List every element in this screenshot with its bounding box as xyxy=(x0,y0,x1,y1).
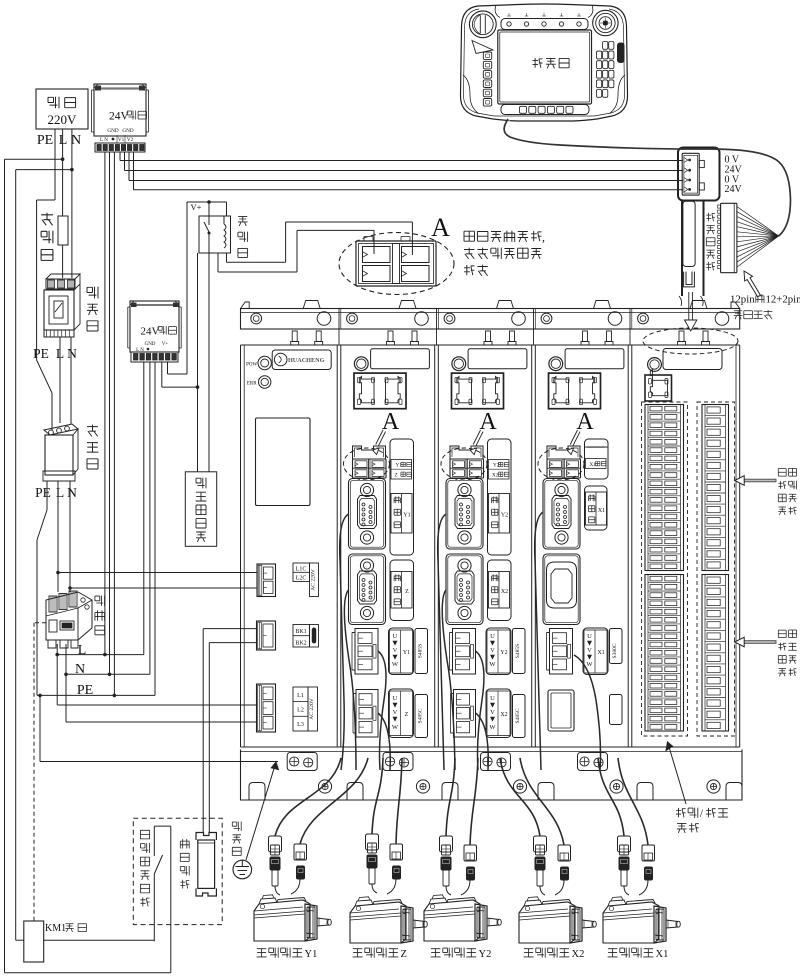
svg-text:L N: L N xyxy=(100,137,108,143)
svg-text:N: N xyxy=(71,133,81,148)
svg-text:Y1: Y1 xyxy=(396,463,403,469)
svg-text:S485C: S485C xyxy=(515,708,521,723)
svg-text:V: V xyxy=(587,647,592,654)
svg-text:PE: PE xyxy=(35,485,51,500)
svg-text:Z: Z xyxy=(405,589,409,595)
svg-text:X2: X2 xyxy=(500,712,507,718)
svg-text:A: A xyxy=(431,213,450,242)
svg-text:24V: 24V xyxy=(109,111,130,123)
svg-text:Y2: Y2 xyxy=(501,513,508,519)
svg-text:Y1: Y1 xyxy=(403,513,410,519)
svg-text:X1: X1 xyxy=(597,650,604,656)
svg-text:V: V xyxy=(490,647,495,654)
svg-text:A: A xyxy=(479,409,497,435)
svg-text:HUACHENG: HUACHENG xyxy=(288,357,325,364)
svg-text:W: W xyxy=(489,724,496,731)
svg-text:S485S: S485S xyxy=(418,644,424,658)
svg-text:24V: 24V xyxy=(141,326,160,338)
svg-text:U: U xyxy=(490,633,495,640)
svg-text:L2C: L2C xyxy=(296,576,307,582)
svg-text:12pin: 12pin xyxy=(730,294,755,306)
svg-text:A: A xyxy=(382,409,400,435)
svg-text:W: W xyxy=(392,661,399,668)
svg-text:Y2: Y2 xyxy=(500,650,507,656)
svg-text:U: U xyxy=(587,633,592,640)
svg-text:S380C: S380C xyxy=(612,643,618,658)
svg-text:220V: 220V xyxy=(48,112,78,127)
svg-text:W: W xyxy=(489,661,496,668)
svg-text:S485C: S485C xyxy=(418,708,424,723)
svg-text:POW: POW xyxy=(246,363,257,368)
svg-text:V: V xyxy=(393,709,398,716)
svg-text:L3: L3 xyxy=(297,722,304,728)
svg-text:Z: Z xyxy=(395,473,398,479)
svg-text:PE: PE xyxy=(37,133,53,148)
svg-text:BK1: BK1 xyxy=(295,629,306,635)
svg-text:L2: L2 xyxy=(297,708,304,714)
svg-text:,: , xyxy=(542,230,545,244)
svg-text:V2: V2 xyxy=(127,137,134,143)
svg-text:Y2: Y2 xyxy=(493,463,500,469)
svg-text:GND: GND xyxy=(145,342,156,347)
svg-text:Z: Z xyxy=(401,949,407,960)
svg-text:GND: GND xyxy=(107,128,118,134)
svg-text:Y1: Y1 xyxy=(403,650,410,656)
svg-text:U: U xyxy=(490,695,495,702)
svg-text:Z: Z xyxy=(405,712,409,718)
svg-text:PE: PE xyxy=(33,346,49,361)
svg-text:Y1: Y1 xyxy=(305,949,318,960)
svg-text:W: W xyxy=(586,661,593,668)
svg-text:24V: 24V xyxy=(725,184,743,195)
svg-text:X2: X2 xyxy=(501,589,508,595)
svg-text:V1: V1 xyxy=(118,137,125,143)
svg-text:X2: X2 xyxy=(572,949,585,960)
svg-text:U: U xyxy=(393,695,398,702)
svg-text:X2: X2 xyxy=(492,473,499,479)
svg-text:L1: L1 xyxy=(297,693,304,699)
svg-text:A: A xyxy=(576,409,594,435)
svg-text:V: V xyxy=(490,709,495,716)
svg-text:AC 220V: AC 220V xyxy=(309,698,315,720)
svg-text:GND: GND xyxy=(122,128,133,134)
svg-text:L: L xyxy=(56,485,64,500)
svg-text:Y2: Y2 xyxy=(479,949,492,960)
svg-text:V: V xyxy=(393,647,398,654)
svg-text:U: U xyxy=(393,633,398,640)
svg-text:12+2pin: 12+2pin xyxy=(766,294,800,306)
svg-text:W: W xyxy=(392,724,399,731)
svg-text:ERR: ERR xyxy=(247,382,257,387)
svg-text:L1C: L1C xyxy=(296,567,307,573)
svg-text:V+: V+ xyxy=(191,202,202,212)
svg-text:N: N xyxy=(67,485,77,500)
svg-text:S485S: S485S xyxy=(515,644,521,658)
svg-text:KM1: KM1 xyxy=(45,923,66,934)
svg-text:BK2: BK2 xyxy=(295,641,306,647)
svg-text:AC 220V: AC 220V xyxy=(311,569,317,591)
svg-text:X1: X1 xyxy=(598,508,605,514)
svg-text:L: L xyxy=(78,643,87,658)
svg-text:V+: V+ xyxy=(162,342,169,347)
svg-text:N: N xyxy=(67,346,77,361)
svg-text:X1: X1 xyxy=(656,949,669,960)
